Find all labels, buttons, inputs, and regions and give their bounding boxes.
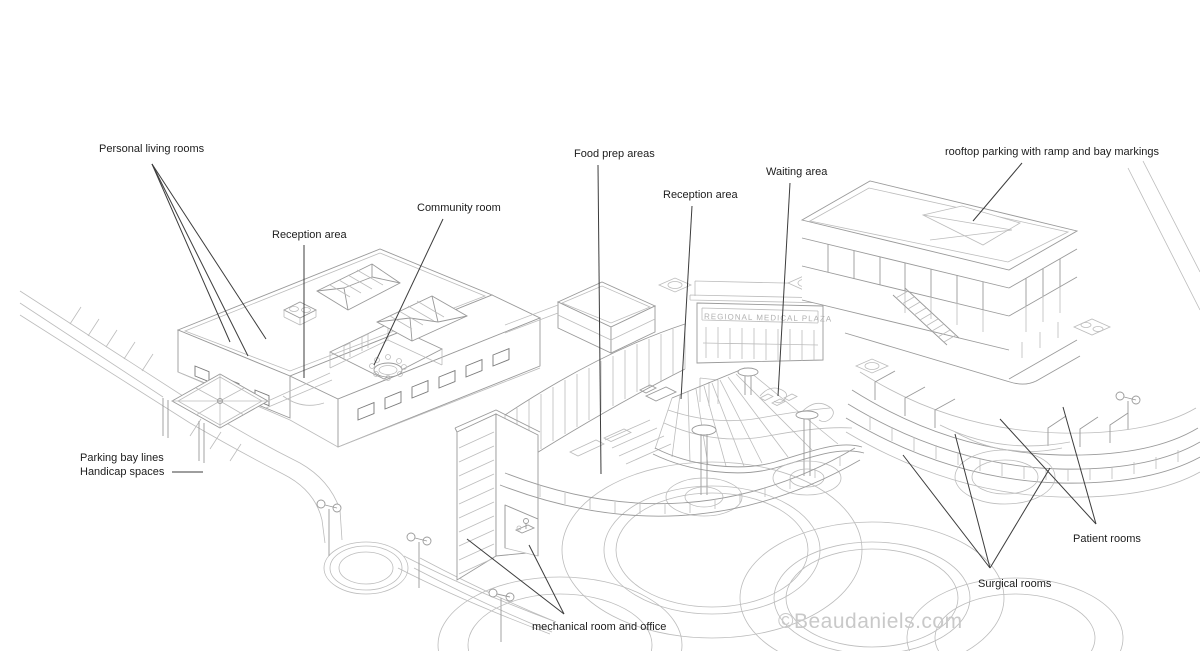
leader-line-waiting-area bbox=[778, 183, 790, 396]
label-food-prep-areas: Food prep areas bbox=[574, 148, 655, 161]
roundabout bbox=[324, 542, 408, 594]
label-surgical-rooms: Surgical rooms bbox=[978, 578, 1051, 591]
reception-desk bbox=[640, 385, 676, 401]
label-rooftop-parking: rooftop parking with ramp and bay markin… bbox=[945, 146, 1159, 159]
leader-line-personal-living-rooms bbox=[152, 164, 266, 339]
rooftop-pads bbox=[659, 275, 824, 292]
label-personal-living-rooms: Personal living rooms bbox=[99, 143, 204, 156]
patient-wing bbox=[846, 371, 1200, 504]
leader-line-surgical-rooms bbox=[990, 468, 1050, 568]
leader-line-personal-living-rooms bbox=[152, 164, 230, 342]
label-reception-area-left: Reception area bbox=[272, 229, 347, 242]
label-parking-bay-lines: Parking bay lines bbox=[80, 452, 164, 465]
medical-plaza-building: REGIONAL MEDICAL PLAZA bbox=[455, 275, 864, 580]
leader-line-reception-area-center bbox=[681, 206, 692, 399]
entry-tensile-canopy bbox=[653, 368, 864, 473]
illustration-page: REGIONAL MEDICAL PLAZA bbox=[0, 0, 1200, 651]
label-waiting-area: Waiting area bbox=[766, 166, 827, 179]
label-handicap-spaces: Handicap spaces bbox=[80, 466, 164, 479]
right-road bbox=[1128, 161, 1200, 310]
label-community-room: Community room bbox=[417, 202, 501, 215]
architectural-illustration: REGIONAL MEDICAL PLAZA bbox=[0, 0, 1200, 651]
label-mechanical-room: mechanical room and office bbox=[532, 621, 666, 634]
watermark: ©Beaudaniels.com bbox=[778, 610, 963, 634]
label-reception-area-center: Reception area bbox=[663, 189, 738, 202]
leader-line-mechanical-room bbox=[529, 545, 564, 614]
parking-structure bbox=[802, 181, 1110, 384]
label-patient-rooms: Patient rooms bbox=[1073, 533, 1141, 546]
